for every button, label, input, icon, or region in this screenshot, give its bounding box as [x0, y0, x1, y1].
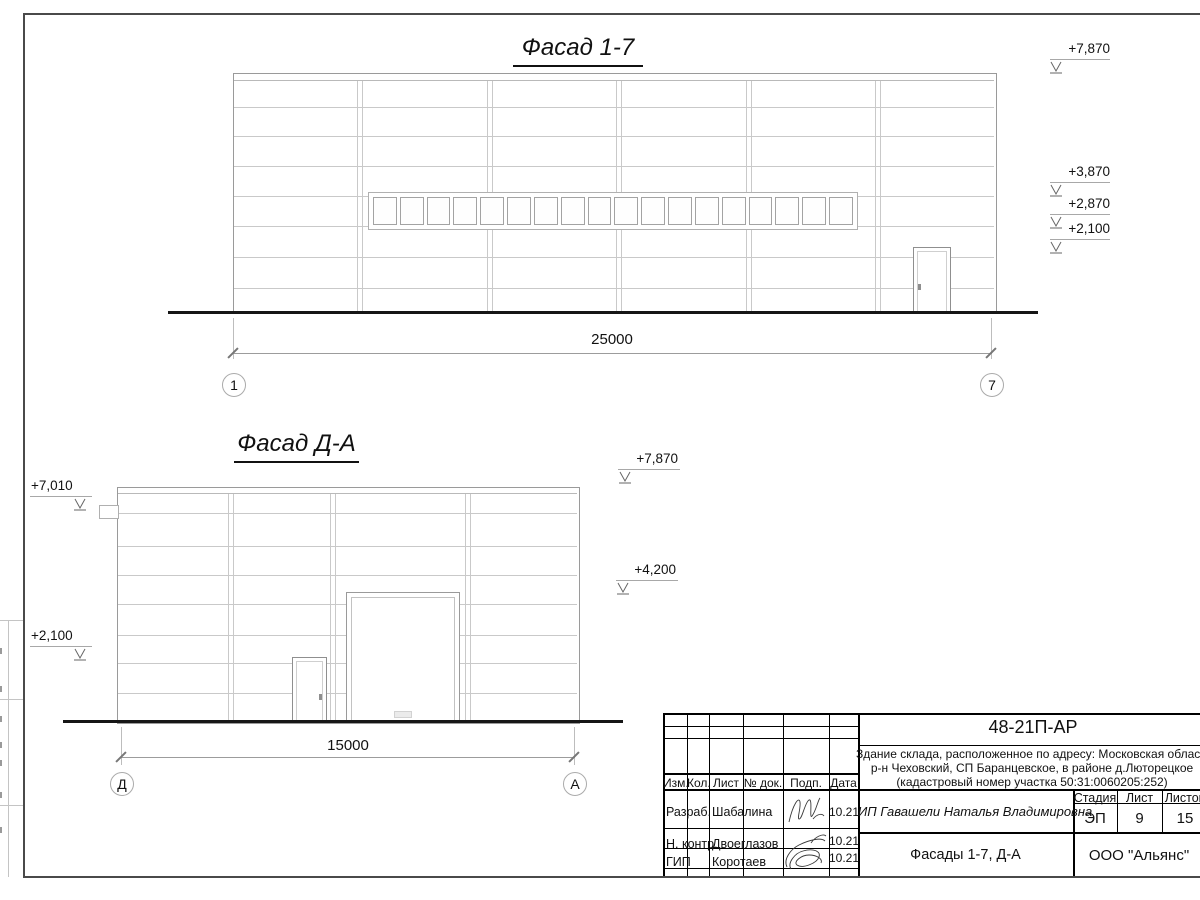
sheet-title: Фасады 1-7, Д-А [858, 847, 1073, 863]
signature-gip [781, 829, 829, 874]
window-pane [480, 197, 504, 225]
name-gip: Коротаев [712, 855, 766, 869]
facade-d-a-title: Фасад Д-А [234, 430, 359, 463]
stage-label: Стадия [1073, 791, 1117, 805]
axis-bubble-7: 7 [980, 373, 1004, 397]
window-pane [775, 197, 799, 225]
margin-line [8, 620, 9, 877]
margin-mark [0, 716, 2, 722]
axis-bubble-a: А [563, 772, 587, 796]
stage-value: ЭП [1073, 810, 1117, 827]
margin-divider [0, 699, 23, 700]
window-pane [427, 197, 451, 225]
elevation-mark-4200: +4,200 [618, 562, 676, 577]
elevation-mark-2870: +2,870 [1052, 196, 1110, 211]
ground-line [63, 720, 623, 723]
frame-bottom-border [23, 876, 1200, 878]
doc-number: 48-21П-АР [858, 717, 1200, 738]
margin-mark [0, 792, 2, 798]
project-address-line1: Здание склада, расположенное по адресу: … [856, 747, 1200, 761]
date-developer: 10.21 [829, 805, 858, 819]
project-address-line2: р-н Чеховский, СП Баранцевское, в районе… [856, 761, 1200, 775]
window-pane [453, 197, 477, 225]
elevation-mark-2100: +2,100 [1052, 221, 1110, 236]
name-developer: Шабалина [712, 805, 772, 819]
elevation-arrow-icon [617, 470, 633, 485]
sectional-gate [346, 592, 460, 723]
margin-divider [0, 620, 23, 621]
sheet-number: 9 [1117, 810, 1162, 827]
sheets-total: 15 [1162, 810, 1200, 827]
column-header-izm: Изм. [663, 776, 687, 790]
column-header-kol: Кол. [687, 776, 709, 790]
margin-mark [0, 760, 2, 766]
window-pane [400, 197, 424, 225]
parapet-line [118, 493, 577, 494]
sheets-label: Листов [1162, 791, 1200, 805]
company-name: ООО "Альянс" [1073, 847, 1200, 864]
margin-mark [0, 686, 2, 692]
sheet-label: Лист [1117, 791, 1162, 805]
dimension-15000: 15000 [298, 737, 398, 754]
facade-1-7-title: Фасад 1-7 [513, 34, 643, 67]
elevation-mark-2100-side: +2,100 [31, 628, 89, 643]
date-ncontrol: 10.21 [829, 834, 858, 848]
gutter-outlet [99, 505, 119, 519]
dimension-line [121, 757, 575, 758]
window-pane [695, 197, 719, 225]
window-pane [749, 197, 773, 225]
role-ncontrol: Н. контр. [666, 837, 718, 851]
margin-mark [0, 742, 2, 748]
elevation-arrow-icon [72, 647, 88, 662]
elevation-mark-3870: +3,870 [1052, 164, 1110, 179]
window-pane [588, 197, 612, 225]
elevation-arrow-icon [615, 581, 631, 596]
date-gip: 10.21 [829, 851, 858, 865]
window-pane [829, 197, 853, 225]
ground-line [168, 311, 1038, 314]
role-developer: Разраб. [666, 805, 711, 819]
margin-mark [0, 648, 2, 654]
elevation-arrow-icon [72, 497, 88, 512]
margin-mark [0, 827, 2, 833]
window-pane [722, 197, 746, 225]
column-header-list: Лист [709, 776, 743, 790]
column-header-doc: № док. [743, 776, 783, 790]
ribbon-window [368, 192, 858, 230]
column-header-podp: Подп. [783, 776, 829, 790]
signature-developer [785, 792, 827, 828]
side-door [292, 657, 327, 723]
window-pane [561, 197, 585, 225]
axis-bubble-1: 1 [222, 373, 246, 397]
name-ncontrol: Двоеглазов [712, 837, 778, 851]
window-pane [641, 197, 665, 225]
client-name: ИП Гавашели Наталья Владимировна [858, 804, 1073, 819]
drawing-sheet: Фасад 1-7 25000 1 7 +7,870 +3,870 +2,870… [0, 0, 1200, 900]
column-header-data: Дата [829, 776, 858, 790]
dimension-25000: 25000 [562, 331, 662, 348]
margin-divider [0, 805, 23, 806]
frame-top-border [23, 13, 1200, 15]
elevation-mark-7870: +7,870 [1052, 41, 1110, 56]
entry-door [913, 247, 951, 314]
window-pane [534, 197, 558, 225]
axis-bubble-d: Д [110, 772, 134, 796]
project-address-line3: (кадастровый номер участка 50:31:0060205… [856, 775, 1200, 789]
role-gip: ГИП [666, 855, 691, 869]
window-pane [373, 197, 397, 225]
frame-left-border [23, 13, 25, 878]
window-pane [668, 197, 692, 225]
window-pane [507, 197, 531, 225]
elevation-mark-7010: +7,010 [31, 478, 89, 493]
elevation-arrow-icon [1048, 240, 1064, 255]
elevation-mark-7870-side: +7,870 [620, 451, 678, 466]
window-pane [614, 197, 638, 225]
elevation-arrow-icon [1048, 60, 1064, 75]
dimension-line [233, 353, 992, 354]
window-pane [802, 197, 826, 225]
